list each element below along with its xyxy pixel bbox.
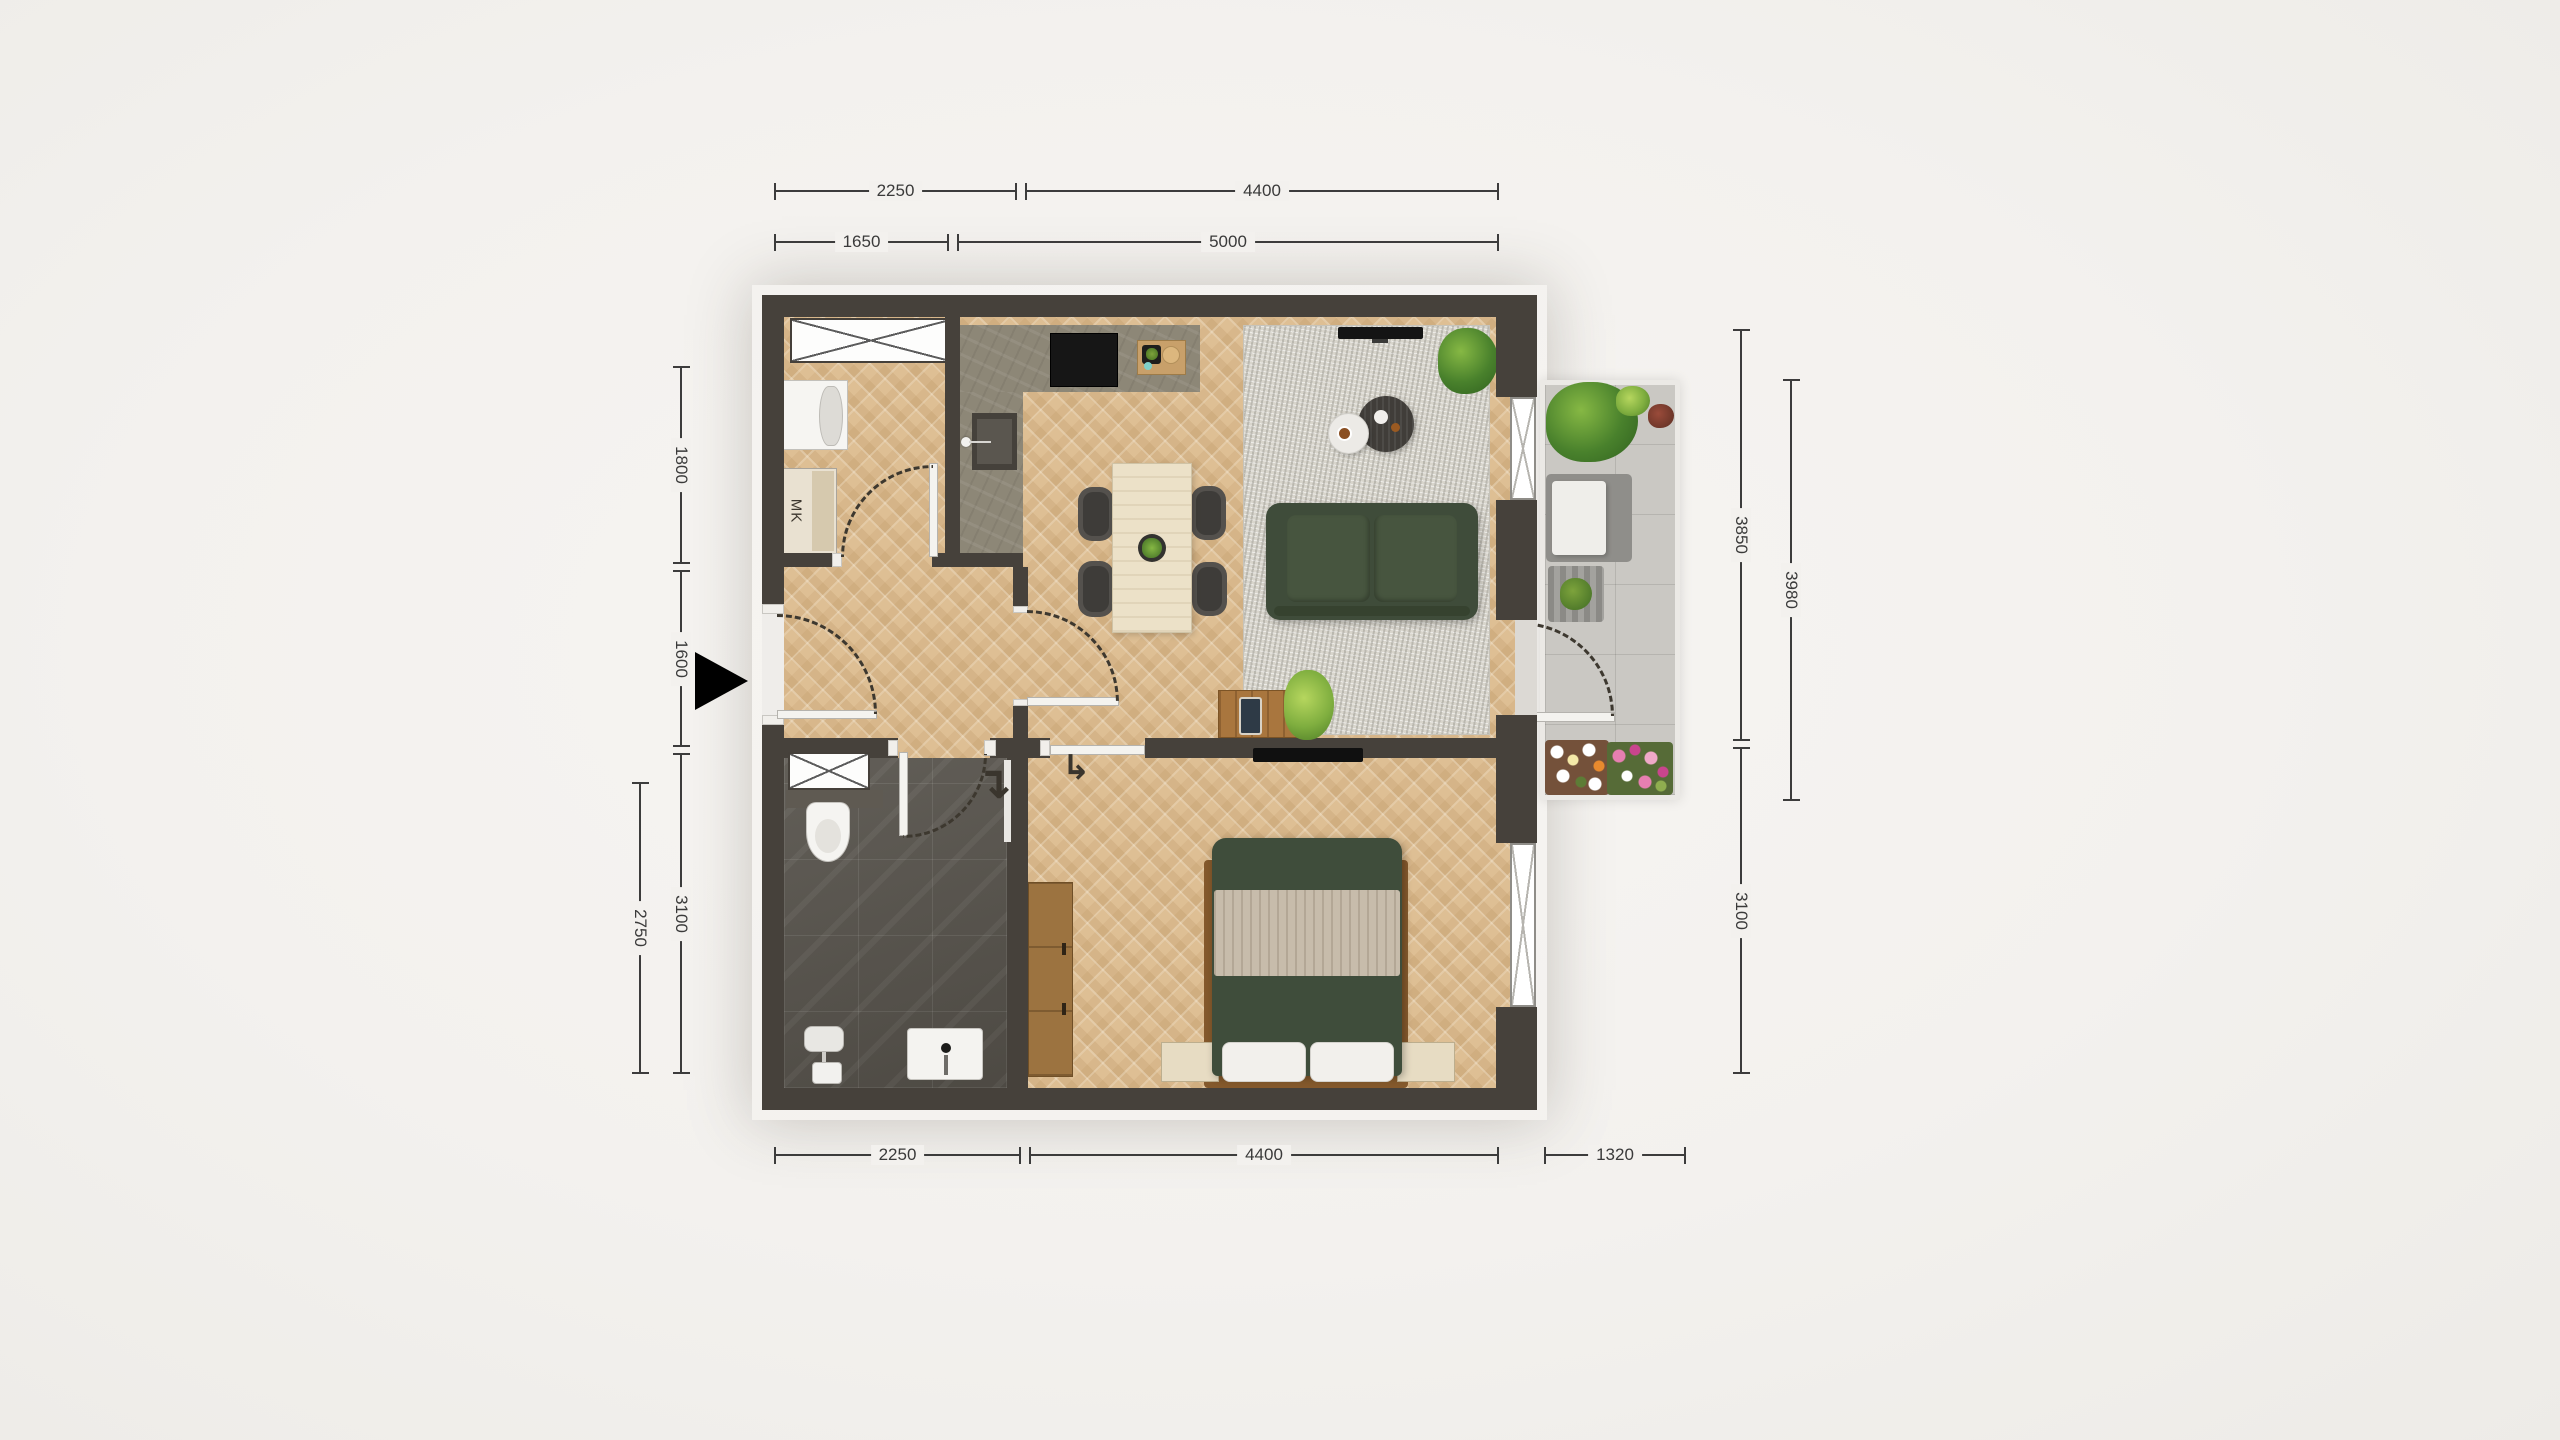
- meter-cupboard: MK: [777, 468, 837, 554]
- dimension-label: 2250: [871, 1145, 925, 1165]
- hall-closet-icon: [790, 318, 952, 363]
- balcony-side-table: [1548, 566, 1604, 622]
- bedroom-window-icon: [1510, 843, 1536, 1007]
- dimension-label: 2250: [869, 181, 923, 201]
- wall-right-3: [1496, 715, 1537, 843]
- dimension-label: 3850: [1731, 508, 1751, 562]
- bed-pillow: [1310, 1042, 1394, 1082]
- dimension-line: 1600: [680, 571, 682, 746]
- bed-blanket: [1214, 890, 1400, 976]
- wall-hall-kitchen-lower: [1013, 706, 1028, 742]
- dimension-label: 3100: [671, 887, 691, 941]
- bedroom-tv-icon: [1253, 748, 1363, 762]
- dining-chair: [1192, 562, 1227, 616]
- door-jamb: [832, 553, 842, 567]
- dimension-label: 3980: [1781, 563, 1801, 617]
- sliding-door-arrow-icon: ↳: [1062, 748, 1091, 788]
- dimension-line: 3100: [680, 754, 682, 1073]
- balcony-door-threshold: [1515, 620, 1537, 715]
- door-jamb: [1013, 606, 1028, 613]
- bed-duvet: [1212, 838, 1402, 1076]
- dining-chair: [1078, 487, 1114, 541]
- washbasin-icon: [907, 1028, 983, 1080]
- flower-box-white: [1545, 740, 1609, 795]
- wall-top: [762, 295, 1537, 317]
- wall-right-4: [1496, 1007, 1537, 1110]
- bathroom-door-arrow-icon: ↴: [975, 758, 1012, 809]
- flower-box-pink: [1607, 742, 1673, 795]
- dimension-label: 3100: [1731, 884, 1751, 938]
- washing-machine-icon: [775, 380, 848, 450]
- dimension-label: 1320: [1588, 1145, 1642, 1165]
- bathroom-closet-icon: [788, 752, 870, 790]
- dimension-label: 5000: [1201, 232, 1255, 252]
- dining-table: [1112, 463, 1192, 633]
- dimension-label: 1650: [835, 232, 889, 252]
- door-jamb: [762, 604, 784, 614]
- coffee-table-white: [1328, 413, 1369, 454]
- wall-laundry-right: [945, 317, 960, 557]
- shower-icon: [804, 1026, 846, 1084]
- dimension-line: 3100: [1740, 748, 1742, 1073]
- dimension-line: 3980: [1790, 380, 1792, 800]
- living-room-window-icon: [1510, 397, 1536, 500]
- dimension-label: 4400: [1237, 1145, 1291, 1165]
- balcony-lounge-chair: [1546, 474, 1632, 562]
- dimension-line: 1320: [1545, 1154, 1685, 1156]
- door-jamb: [984, 740, 996, 756]
- cutting-board-icon: [1137, 340, 1186, 375]
- dining-chair: [1078, 561, 1114, 617]
- wall-right-1: [1496, 295, 1537, 397]
- sofa: [1266, 503, 1478, 620]
- nightstand: [1397, 1042, 1455, 1082]
- dimension-line: 4400: [1030, 1154, 1498, 1156]
- wardrobe: [1028, 882, 1073, 1077]
- dimension-line: 2750: [639, 783, 641, 1073]
- dimension-line: 5000: [958, 241, 1498, 243]
- tv-stand: [1372, 339, 1388, 343]
- entrance-arrow-icon: [695, 652, 748, 710]
- wall-laundry-bottom-right: [932, 553, 1023, 567]
- wall-right-2: [1496, 500, 1537, 620]
- cooktop-icon: [1050, 333, 1118, 387]
- tv-icon: [1338, 327, 1423, 339]
- dimension-label: 1600: [671, 632, 691, 686]
- nightstand: [1161, 1042, 1219, 1082]
- dimension-label: 4400: [1235, 181, 1289, 201]
- kitchen-faucet-stem: [969, 441, 991, 443]
- dimension-line: 4400: [1026, 190, 1498, 192]
- toilet-icon: [806, 802, 850, 862]
- door-jamb: [1040, 740, 1050, 756]
- wall-bottom: [762, 1088, 1537, 1110]
- dimension-line: 1800: [680, 367, 682, 563]
- wall-left-lower: [762, 716, 784, 1110]
- floorplan-canvas: MK: [0, 0, 2560, 1440]
- door-jamb: [1013, 699, 1028, 706]
- dimension-line: 2250: [775, 1154, 1020, 1156]
- bed-pillow: [1222, 1042, 1306, 1082]
- dimension-line: 3850: [1740, 330, 1742, 740]
- wall-left-upper: [762, 295, 784, 613]
- dining-chair: [1191, 486, 1226, 540]
- dimension-label: 1800: [671, 438, 691, 492]
- dimension-line: 2250: [775, 190, 1016, 192]
- meter-cupboard-label: MK: [788, 497, 805, 525]
- dimension-label: 2750: [630, 901, 650, 955]
- door-jamb: [888, 740, 898, 756]
- dimension-line: 1650: [775, 241, 948, 243]
